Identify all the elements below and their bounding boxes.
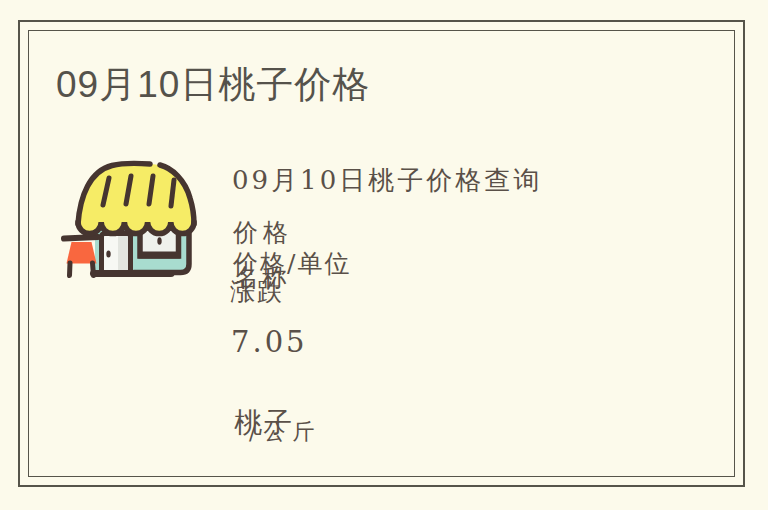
- storefront-sign: [64, 237, 98, 276]
- unit-suffix: /公斤: [249, 419, 321, 444]
- storefront-door: [102, 234, 131, 274]
- price-value: 7.05: [231, 326, 308, 359]
- storefront-awning: [78, 163, 194, 233]
- article-heading: 09月10日桃子价格查询: [232, 166, 542, 196]
- page: 09月10日桃子价格: [0, 0, 768, 510]
- price-label: 价格: [233, 219, 293, 248]
- change-label: 涨跌: [230, 278, 284, 307]
- storefront-icon: [60, 160, 218, 282]
- page-title: 09月10日桃子价格: [56, 60, 370, 110]
